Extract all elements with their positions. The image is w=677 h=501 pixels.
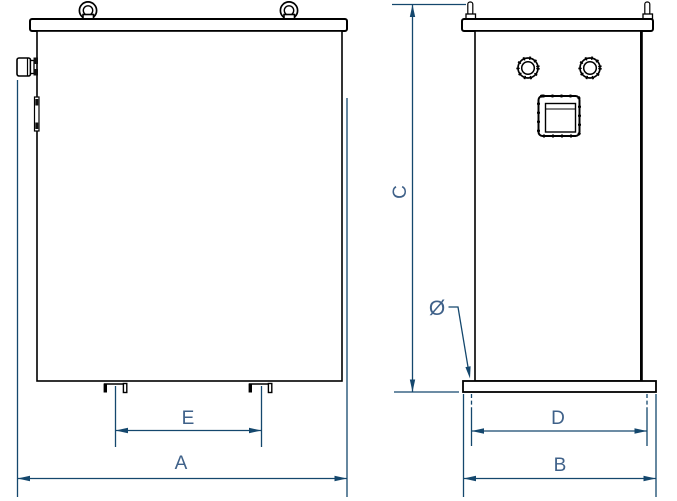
dimension-c: C <box>390 5 466 393</box>
diameter-callout: Ø <box>429 297 471 379</box>
dimension-e: E <box>116 386 262 447</box>
front-view <box>17 2 347 393</box>
inspection-plate <box>539 96 580 136</box>
dim-b-label: B <box>554 455 567 476</box>
gland-ring-icon <box>518 58 538 78</box>
lifting-eye-icon <box>79 2 96 19</box>
side-body <box>475 31 642 381</box>
base-plate <box>463 381 656 392</box>
dim-e-label: E <box>182 408 195 429</box>
dim-d-label: D <box>551 408 565 429</box>
lifting-eye-icon <box>280 2 297 19</box>
hinge-icon <box>35 97 40 131</box>
side-lid <box>462 19 653 31</box>
diameter-symbol: Ø <box>429 297 445 320</box>
cable-gland-icon <box>17 58 38 77</box>
dim-a-label: A <box>175 453 188 474</box>
front-body <box>37 31 342 381</box>
lifting-eye-pin-icon <box>643 2 653 19</box>
dimension-d: D <box>472 394 648 446</box>
enclosure-drawing: A E C Ø <box>0 0 677 501</box>
front-lid <box>30 19 347 31</box>
dim-c-label: C <box>390 185 411 199</box>
side-view <box>462 2 656 392</box>
drawing-canvas: A E C Ø <box>0 0 677 501</box>
foot-right <box>249 384 272 393</box>
lifting-eye-pin-icon <box>466 2 476 19</box>
gland-ring-icon <box>580 58 600 78</box>
